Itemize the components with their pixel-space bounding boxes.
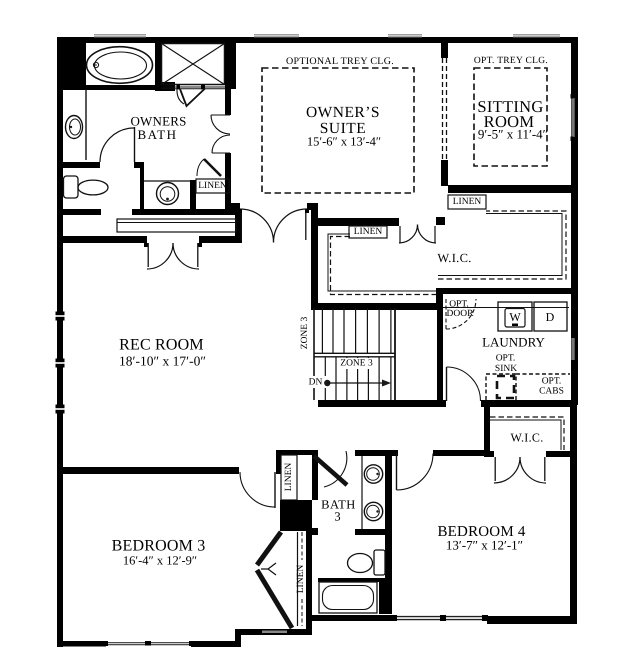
- svg-text:D: D: [546, 310, 555, 324]
- svg-text:W.I.C.: W.I.C.: [510, 431, 543, 445]
- svg-text:LAUNDRY: LAUNDRY: [482, 335, 545, 350]
- svg-text:LINEN: LINEN: [198, 181, 227, 191]
- svg-text:3: 3: [334, 510, 340, 524]
- svg-text:DN: DN: [309, 378, 323, 388]
- svg-text:CABS: CABS: [539, 387, 564, 397]
- svg-text:SINK: SINK: [495, 364, 517, 374]
- svg-text:OPT.: OPT.: [542, 377, 562, 387]
- svg-text:W: W: [509, 310, 521, 324]
- svg-text:LINEN: LINEN: [354, 227, 383, 237]
- svg-text:LINEN: LINEN: [453, 197, 482, 207]
- svg-text:13′-7″ x 12′-1″: 13′-7″ x 12′-1″: [446, 538, 523, 553]
- svg-text:OPT.: OPT.: [496, 354, 516, 364]
- svg-text:ZONE 3: ZONE 3: [340, 359, 373, 369]
- svg-text:OWNER’S: OWNER’S: [306, 104, 380, 121]
- svg-text:LINEN: LINEN: [296, 565, 306, 594]
- svg-text:OPT. TREY CLG.: OPT. TREY CLG.: [474, 56, 548, 66]
- svg-text:OPTIONAL TREY CLG.: OPTIONAL TREY CLG.: [286, 56, 394, 67]
- svg-text:9′-5″ x 11′-4″: 9′-5″ x 11′-4″: [478, 127, 548, 142]
- svg-text:ZONE 3: ZONE 3: [300, 317, 310, 350]
- svg-text:DOOR: DOOR: [447, 309, 475, 319]
- svg-text:W.I.C.: W.I.C.: [437, 251, 471, 265]
- svg-text:BEDROOM 3: BEDROOM 3: [112, 538, 206, 555]
- svg-text:15′-6″ x 13′-4″: 15′-6″ x 13′-4″: [307, 135, 381, 149]
- svg-text:18′-10″ x 17′-0″: 18′-10″ x 17′-0″: [119, 354, 206, 369]
- svg-text:16′-4″ x 12′-9″: 16′-4″ x 12′-9″: [123, 554, 197, 568]
- svg-text:REC ROOM: REC ROOM: [119, 337, 204, 354]
- svg-text:BATH: BATH: [138, 127, 178, 142]
- svg-text:LINEN: LINEN: [284, 463, 294, 492]
